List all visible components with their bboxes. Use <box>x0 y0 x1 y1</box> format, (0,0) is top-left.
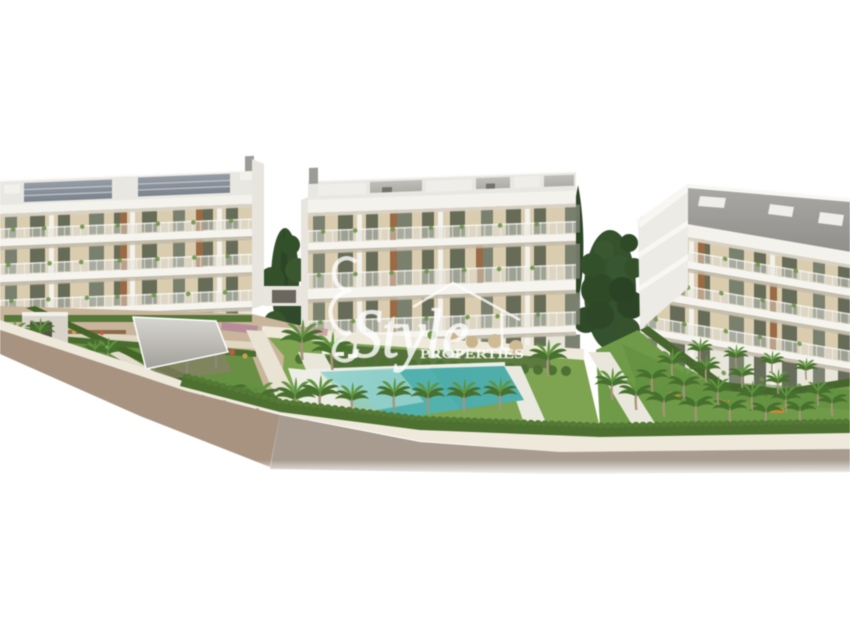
svg-text:PROPERTIES: PROPERTIES <box>420 347 524 361</box>
svg-text:Style: Style <box>352 296 469 373</box>
